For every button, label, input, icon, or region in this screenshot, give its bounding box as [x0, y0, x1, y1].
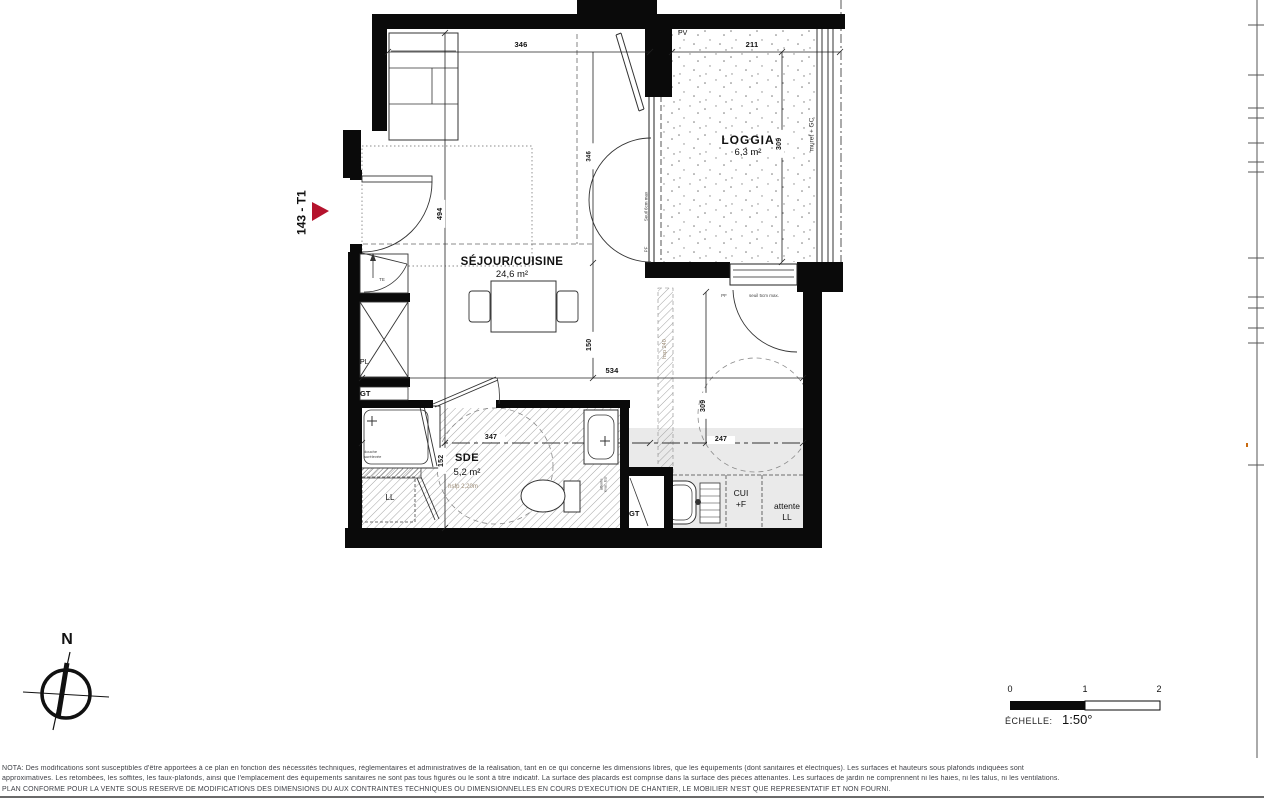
- dining-table: [469, 281, 578, 332]
- sde-area-label: 5,2 m²: [442, 468, 492, 478]
- dim-534: 534: [597, 367, 627, 375]
- te-closet: [360, 254, 408, 293]
- loggia-door-sill: [730, 264, 797, 285]
- dim-309-hall: 309: [700, 393, 708, 419]
- tilted-window-pane: [616, 33, 644, 111]
- dim-346-top: 346: [504, 41, 538, 49]
- loggia-entry-door-swing: [733, 290, 797, 352]
- dim-211-loggia: 211: [735, 41, 769, 49]
- dim-152-sde: 152: [438, 448, 446, 474]
- seuil-window-label: Seuil 6cm max: [645, 180, 650, 232]
- dim-150: 150: [586, 332, 594, 358]
- loggia-french-doors: [589, 138, 651, 262]
- toilet: [521, 480, 580, 512]
- attente-ll-label: attente LL: [767, 501, 807, 522]
- evac-label: attente évac. EU: [600, 466, 609, 502]
- scale-tick-0: 0: [1005, 685, 1015, 695]
- floor-plan-sheet: 143 - T1 SÉJOUR/CUISINE 24,6 m² LOGGIA 6…: [0, 0, 1264, 800]
- scale-value: 1:50°: [1062, 713, 1102, 727]
- hsp-label: hsp 240: [662, 331, 668, 367]
- seuil-door-label: seuil 5cm max.: [739, 294, 789, 299]
- sejour-room-label: SÉJOUR/CUISINE: [442, 256, 582, 269]
- entry-door: [362, 176, 432, 252]
- evac-line2: évac. EU: [604, 477, 608, 492]
- douche-label: douche surélevée: [364, 450, 398, 460]
- soffit-strip-hatch: [658, 288, 673, 473]
- shower-step: [357, 468, 421, 478]
- cui-line2: +F: [736, 499, 746, 509]
- muret-label: muret + GC: [808, 107, 815, 163]
- pv-label: PV: [678, 30, 698, 38]
- lot-label: 143 - T1: [295, 183, 308, 243]
- washbasin: [584, 410, 618, 464]
- kitchen-counter: [389, 33, 458, 140]
- dim-494: 494: [437, 200, 445, 228]
- attente-line1: attente: [774, 501, 800, 511]
- douche-line2: surélevée: [364, 454, 381, 459]
- scale-tick-2: 2: [1154, 685, 1164, 695]
- compass-icon: [23, 652, 109, 730]
- scale-caption: ÉCHELLE:: [1005, 717, 1065, 727]
- loggia-area-label: 6,3 m²: [718, 148, 778, 158]
- pl-label: PL: [360, 359, 376, 367]
- dim-247-hall: 247: [707, 436, 735, 444]
- te-label: TE: [376, 278, 388, 283]
- pf-window-label: PF: [645, 242, 650, 256]
- scale-bar: [1010, 701, 1160, 710]
- sde-door: [433, 377, 499, 407]
- scale-tick-1: 1: [1080, 685, 1090, 695]
- sde-room-label: SDE: [447, 452, 487, 464]
- dim-347-sde: 347: [477, 434, 505, 442]
- gt-left-label: GT: [360, 390, 380, 398]
- cui-label: CUI +F: [726, 488, 756, 509]
- notes-line-3: PLAN CONFORME POUR LA VENTE SOUS RESERVE…: [2, 786, 1262, 793]
- pf-door-label: PF: [718, 294, 730, 299]
- dim-346-window: 346: [587, 143, 594, 169]
- notes-line-1: NOTA: Des modifications sont susceptible…: [2, 765, 1262, 772]
- sejour-area-label: 24,6 m²: [477, 270, 547, 280]
- loggia-muret: [817, 29, 833, 262]
- lot-marker-icon: [312, 202, 329, 221]
- dim-309-loggia: 309: [776, 130, 784, 158]
- right-edge-table: [1246, 0, 1264, 758]
- floor-plan-drawing: [0, 0, 1264, 800]
- attente-line2: LL: [782, 512, 791, 522]
- gt-shaft-label: GT: [629, 510, 649, 518]
- cui-line1: CUI: [734, 488, 749, 498]
- ll-label: LL: [380, 494, 400, 503]
- sde-ceiling-height-label: hsfp 2,20m: [433, 484, 493, 491]
- notes-line-2: approximatives. Les retombées, les soffi…: [2, 775, 1262, 782]
- compass-north-label: N: [57, 631, 77, 649]
- gt-shaft: [629, 476, 664, 528]
